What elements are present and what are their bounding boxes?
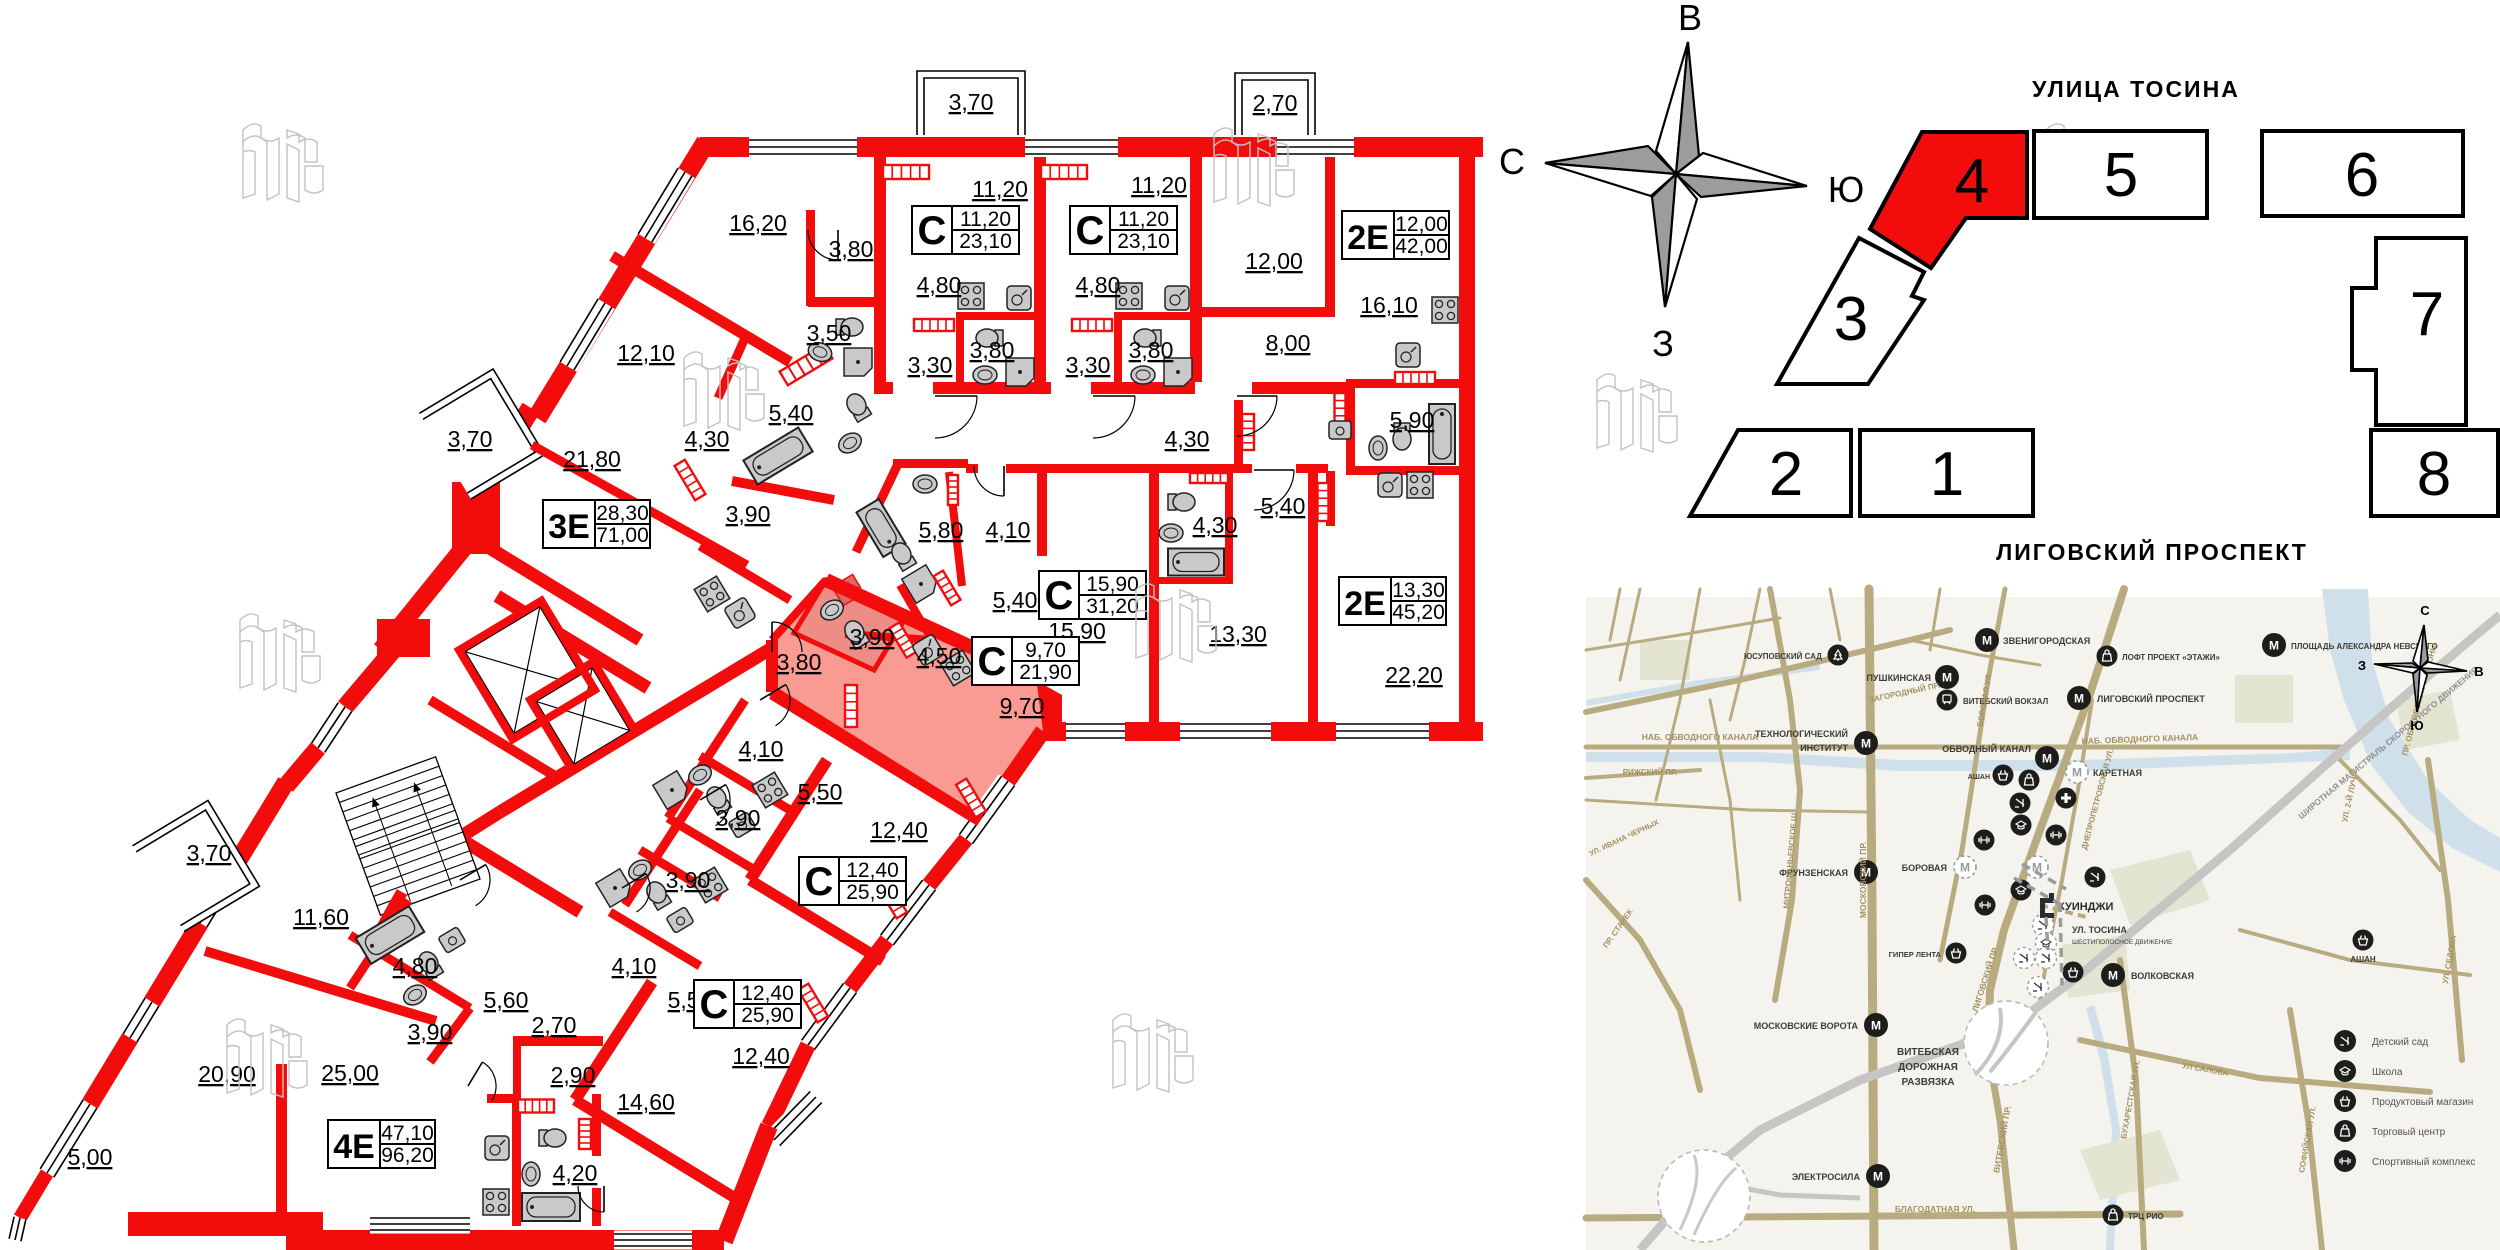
svg-text:12,00: 12,00 [1245,248,1303,274]
svg-text:Ю: Ю [2410,718,2423,733]
svg-text:З: З [1652,323,1674,364]
svg-text:3,90: 3,90 [716,805,761,831]
svg-text:БОРОВАЯ: БОРОВАЯ [1902,863,1947,873]
svg-text:21,90: 21,90 [1019,661,1072,684]
svg-text:12,40: 12,40 [846,859,899,882]
svg-text:ЛИГОВСКИЙ ПРОСПЕКТ: ЛИГОВСКИЙ ПРОСПЕКТ [1996,538,2308,565]
svg-text:4,10: 4,10 [612,953,657,979]
svg-text:3,90: 3,90 [850,624,895,650]
svg-text:22,20: 22,20 [1385,662,1443,688]
svg-text:8: 8 [2417,440,2451,509]
svg-text:ДОРОЖНАЯ: ДОРОЖНАЯ [1898,1062,1958,1073]
svg-text:5,40: 5,40 [1261,493,1306,519]
svg-text:4: 4 [1955,147,1989,216]
svg-text:3,70: 3,70 [187,840,232,866]
svg-text:Детский сад: Детский сад [2372,1037,2428,1048]
svg-text:6: 6 [2345,141,2379,210]
svg-text:2Е: 2Е [1344,585,1386,623]
svg-text:4,50: 4,50 [917,643,962,669]
svg-text:АШАН: АШАН [2350,955,2376,964]
svg-text:4,30: 4,30 [685,426,730,452]
svg-text:УЛИЦА ТОСИНА: УЛИЦА ТОСИНА [2032,76,2240,102]
svg-text:С: С [805,860,834,904]
svg-text:ВОЛКОВСКАЯ: ВОЛКОВСКАЯ [2131,971,2194,981]
svg-text:ЛИГОВСКИЙ ПРОСПЕКТ: ЛИГОВСКИЙ ПРОСПЕКТ [2097,693,2205,704]
svg-text:Спортивный комплекс: Спортивный комплекс [2372,1157,2475,1168]
svg-text:9,70: 9,70 [1000,693,1045,719]
svg-text:С: С [978,640,1007,684]
svg-text:Ю: Ю [1828,169,1864,210]
svg-text:М: М [1871,1019,1881,1033]
svg-text:2,90: 2,90 [551,1062,596,1088]
svg-text:25,00: 25,00 [321,1060,379,1086]
svg-text:12,40: 12,40 [732,1043,790,1069]
svg-text:4Е: 4Е [333,1128,375,1166]
svg-text:С: С [1076,209,1105,253]
svg-text:ЗВЕНИГОРОДСКАЯ: ЗВЕНИГОРОДСКАЯ [2003,636,2090,646]
svg-text:13,30: 13,30 [1209,621,1267,647]
svg-text:23,10: 23,10 [959,230,1012,253]
svg-text:42,00: 42,00 [1395,235,1448,258]
svg-text:ТЕХНОЛОГИЧЕСКИЙ: ТЕХНОЛОГИЧЕСКИЙ [1755,728,1848,739]
svg-text:ИНСТИТУТ: ИНСТИТУТ [1800,743,1848,753]
svg-text:3,80: 3,80 [1129,337,1174,363]
svg-text:КУИНДЖИ: КУИНДЖИ [2058,901,2113,913]
svg-text:3,90: 3,90 [726,501,771,527]
svg-text:М: М [1873,1170,1883,1184]
svg-text:3,80: 3,80 [777,649,822,675]
svg-text:Торговый центр: Торговый центр [2372,1127,2446,1138]
svg-text:М: М [2108,969,2118,983]
svg-text:3,70: 3,70 [448,426,493,452]
svg-text:25,90: 25,90 [741,1004,794,1027]
svg-text:14,60: 14,60 [617,1089,675,1115]
svg-text:С: С [918,209,947,253]
svg-text:8,00: 8,00 [1266,330,1311,356]
svg-text:5: 5 [2104,141,2138,210]
svg-text:С: С [700,983,729,1027]
svg-text:4,80: 4,80 [917,272,962,298]
svg-text:12,40: 12,40 [870,817,928,843]
svg-text:5,90: 5,90 [1390,407,1435,433]
svg-text:М: М [2074,692,2084,706]
svg-text:25,90: 25,90 [846,881,899,904]
svg-text:РАЗВЯЗКА: РАЗВЯЗКА [1901,1077,1954,1088]
svg-text:В: В [2474,664,2483,679]
svg-text:УЛ. ТОСИНА: УЛ. ТОСИНА [2072,925,2127,935]
svg-text:РИЖСКИЙ ПР.: РИЖСКИЙ ПР. [1623,768,1678,777]
svg-text:1: 1 [1930,440,1964,509]
svg-text:4,80: 4,80 [393,953,438,979]
svg-text:5,60: 5,60 [484,987,529,1013]
svg-text:4,80: 4,80 [1076,272,1121,298]
svg-text:2Е: 2Е [1347,219,1389,257]
svg-text:12,00: 12,00 [1395,213,1448,236]
svg-text:ТРЦ РИО: ТРЦ РИО [2128,1212,2164,1221]
svg-text:11,20: 11,20 [972,176,1028,202]
svg-text:11,20: 11,20 [1118,208,1169,231]
svg-text:ВИТЕБСКАЯ: ВИТЕБСКАЯ [1897,1047,1959,1058]
svg-text:М: М [1960,861,1970,875]
svg-text:3,80: 3,80 [970,337,1015,363]
svg-text:28,30: 28,30 [596,502,649,525]
svg-text:2,70: 2,70 [532,1012,577,1038]
svg-text:Продуктовый магазин: Продуктовый магазин [2372,1097,2473,1108]
svg-text:С: С [2420,603,2430,618]
svg-text:В: В [1678,0,1702,38]
svg-text:3,70: 3,70 [949,89,994,115]
svg-text:ВИТЕБСКИЙ ВОКЗАЛ: ВИТЕБСКИЙ ВОКЗАЛ [1963,697,2049,706]
svg-text:5,40: 5,40 [769,400,814,426]
svg-text:БЛАГОДАТНАЯ УЛ.: БЛАГОДАТНАЯ УЛ. [1895,1204,1975,1214]
svg-text:3,90: 3,90 [408,1019,453,1045]
svg-text:М: М [2269,639,2279,653]
svg-text:15,90: 15,90 [1086,573,1139,596]
svg-text:3Е: 3Е [548,508,590,546]
svg-text:3,90: 3,90 [666,867,711,893]
svg-text:С: С [1499,141,1525,182]
svg-text:НАБ. ОБВОДНОГО КАНАЛА: НАБ. ОБВОДНОГО КАНАЛА [1642,732,1759,742]
svg-text:ПУШКИНСКАЯ: ПУШКИНСКАЯ [1866,673,1931,683]
svg-text:23,10: 23,10 [1117,230,1170,253]
svg-text:12,10: 12,10 [617,340,675,366]
svg-text:11,60: 11,60 [293,904,349,930]
svg-text:М: М [1942,671,1952,685]
svg-text:16,20: 16,20 [729,210,787,236]
svg-text:М: М [1861,737,1871,751]
svg-text:3,50: 3,50 [807,320,852,346]
svg-text:3,80: 3,80 [829,236,874,262]
svg-text:5,40: 5,40 [993,587,1038,613]
svg-text:11,20: 11,20 [1131,172,1187,198]
svg-text:2: 2 [1769,440,1803,509]
svg-text:ЛОФТ ПРОЕКТ «ЭТАЖИ»: ЛОФТ ПРОЕКТ «ЭТАЖИ» [2122,653,2220,662]
svg-text:31,20: 31,20 [1086,595,1139,618]
svg-text:М: М [2042,752,2052,766]
svg-text:16,10: 16,10 [1360,292,1418,318]
svg-text:4,30: 4,30 [1165,426,1210,452]
svg-text:21,80: 21,80 [563,446,621,472]
svg-text:96,20: 96,20 [381,1144,434,1167]
svg-text:МОСКОВСКИЕ ВОРОТА: МОСКОВСКИЕ ВОРОТА [1754,1021,1859,1031]
svg-text:ШЕСТИПОЛОСНОЕ ДВИЖЕНИЕ: ШЕСТИПОЛОСНОЕ ДВИЖЕНИЕ [2072,939,2173,946]
svg-text:47,10: 47,10 [381,1122,434,1145]
svg-text:5,80: 5,80 [919,517,964,543]
svg-text:5,00: 5,00 [68,1144,113,1170]
svg-text:4,10: 4,10 [986,517,1031,543]
svg-text:3: 3 [1834,285,1868,354]
svg-text:М: М [2072,766,2082,780]
svg-text:М: М [1982,634,1992,648]
svg-text:71,00: 71,00 [596,524,649,547]
svg-text:9,70: 9,70 [1025,639,1066,662]
svg-text:ЮСУПОВСКИЙ САД: ЮСУПОВСКИЙ САД [1744,652,1822,661]
svg-text:3,30: 3,30 [908,352,953,378]
svg-text:З: З [2358,658,2366,673]
svg-text:Школа: Школа [2372,1067,2403,1078]
svg-text:45,20: 45,20 [1392,601,1445,624]
svg-text:4,30: 4,30 [1193,512,1238,538]
svg-text:12,40: 12,40 [741,982,794,1005]
svg-text:4,10: 4,10 [739,736,784,762]
svg-text:АШАН: АШАН [1968,774,1990,781]
svg-text:ЭЛЕКТРОСИЛА: ЭЛЕКТРОСИЛА [1792,1172,1861,1182]
svg-text:7: 7 [2410,280,2444,349]
svg-text:3,30: 3,30 [1066,352,1111,378]
svg-text:13,30: 13,30 [1392,579,1445,602]
svg-text:МОСКОВСКИЙ ПР.: МОСКОВСКИЙ ПР. [1857,842,1868,918]
svg-text:4,20: 4,20 [553,1160,598,1186]
svg-text:11,20: 11,20 [960,208,1011,231]
svg-text:5,50: 5,50 [798,779,843,805]
svg-text:2,70: 2,70 [1253,90,1298,116]
svg-text:С: С [1045,574,1074,618]
svg-text:ОБВОДНЫЙ КАНАЛ: ОБВОДНЫЙ КАНАЛ [1942,743,2031,754]
svg-text:ГИПЕР ЛЕНТА: ГИПЕР ЛЕНТА [1889,950,1942,959]
